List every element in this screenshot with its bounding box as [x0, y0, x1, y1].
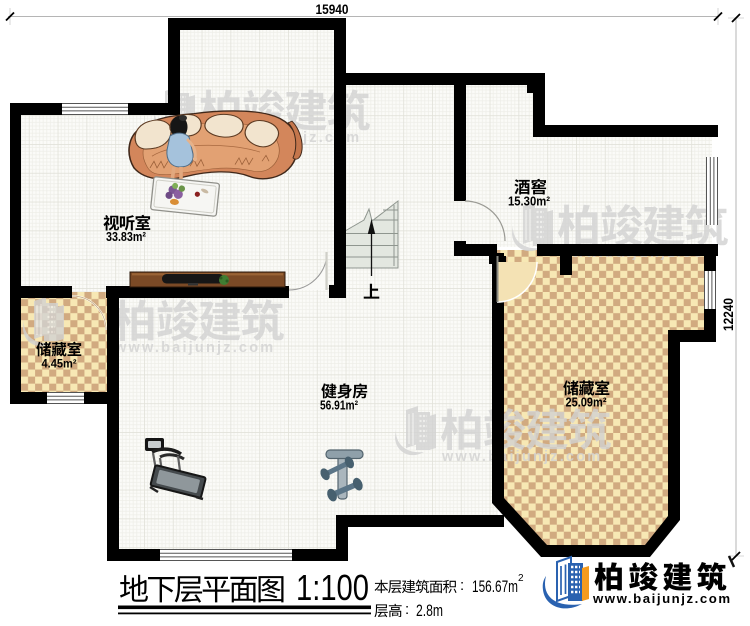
- svg-text:4.45m²: 4.45m²: [42, 357, 77, 371]
- svg-text:15940: 15940: [316, 2, 349, 17]
- svg-text:33.83m²: 33.83m²: [106, 229, 146, 244]
- svg-text:25.09m²: 25.09m²: [566, 395, 607, 410]
- svg-text::: :: [460, 577, 464, 594]
- svg-text:2: 2: [518, 573, 524, 584]
- svg-text::: :: [405, 601, 409, 618]
- svg-text:www.baijunjz.com: www.baijunjz.com: [441, 449, 602, 465]
- svg-text:2.8m: 2.8m: [416, 601, 443, 620]
- svg-text:156.67m: 156.67m: [472, 577, 518, 596]
- svg-text:12240: 12240: [721, 298, 736, 331]
- svg-text:15.30m²: 15.30m²: [508, 194, 550, 209]
- svg-text:1:100: 1:100: [296, 567, 369, 608]
- svg-text:www.baijunjz.com: www.baijunjz.com: [592, 591, 732, 606]
- svg-text:56.91m²: 56.91m²: [320, 398, 358, 413]
- svg-text:www.baijunjz.com: www.baijunjz.com: [114, 340, 275, 356]
